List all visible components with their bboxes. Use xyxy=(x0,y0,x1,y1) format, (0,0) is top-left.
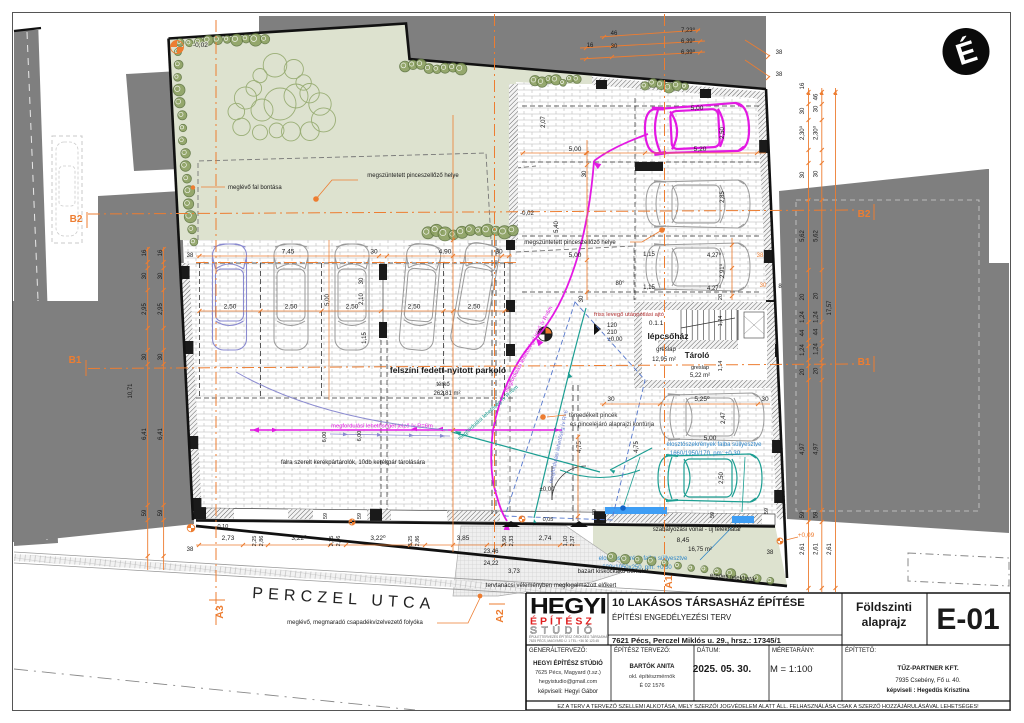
svg-text:30: 30 xyxy=(142,272,148,279)
svg-text:6,41: 6,41 xyxy=(158,428,164,440)
svg-text:2,86: 2,86 xyxy=(415,536,421,547)
svg-text:ÉPÍTTETŐ:: ÉPÍTTETŐ: xyxy=(845,647,876,654)
svg-text:30: 30 xyxy=(370,249,378,256)
svg-text:2,07: 2,07 xyxy=(541,116,547,128)
svg-text:Földszinti: Földszinti xyxy=(856,600,912,614)
svg-text:46: 46 xyxy=(611,31,618,37)
svg-text:10 LAKÁSOS TÁRSASHÁZ ÉPÍTÉSE: 10 LAKÁSOS TÁRSASHÁZ ÉPÍTÉSE xyxy=(612,596,805,609)
svg-text:B1: B1 xyxy=(69,355,82,366)
svg-text:5,62: 5,62 xyxy=(814,230,820,242)
svg-text:2,25: 2,25 xyxy=(252,536,258,547)
svg-text:20: 20 xyxy=(814,367,820,374)
svg-text:44: 44 xyxy=(814,328,820,335)
svg-text:+0,09: +0,09 xyxy=(798,532,815,539)
svg-text:1,24: 1,24 xyxy=(814,343,820,355)
svg-text:6,41: 6,41 xyxy=(142,428,148,440)
svg-text:46: 46 xyxy=(814,93,820,100)
svg-text:1,24: 1,24 xyxy=(718,316,724,327)
svg-text:16: 16 xyxy=(158,249,164,256)
svg-text:friss levegő utánpótlási ajtó: friss levegő utánpótlási ajtó xyxy=(594,312,664,318)
svg-text:4,27⁰: 4,27⁰ xyxy=(707,252,722,259)
svg-text:0.1.1.: 0.1.1. xyxy=(649,320,665,327)
svg-text:262,81 m²: 262,81 m² xyxy=(433,391,460,397)
svg-text:2,30⁰: 2,30⁰ xyxy=(813,125,820,140)
svg-text:tömedékelt pincék: tömedékelt pincék xyxy=(569,413,618,419)
svg-text:24,22: 24,22 xyxy=(483,561,499,567)
svg-text:30: 30 xyxy=(800,171,806,178)
svg-text:30: 30 xyxy=(800,107,806,114)
svg-text:A1: A1 xyxy=(663,575,675,589)
svg-text:20: 20 xyxy=(814,292,820,299)
svg-text:tervtanácsi véleményben megfog: tervtanácsi véleményben megfogalmazott e… xyxy=(486,583,617,589)
svg-text:ÉPÍTÉSI ENGEDÉLYEZÉSI TERV: ÉPÍTÉSI ENGEDÉLYEZÉSI TERV xyxy=(612,613,732,622)
svg-text:4,97: 4,97 xyxy=(814,443,820,455)
svg-text:felszíni fedett-nyitott parkol: felszíni fedett-nyitott parkoló xyxy=(390,365,506,375)
svg-text:7935 Csebény, Fő u. 40.: 7935 Csebény, Fő u. 40. xyxy=(895,678,961,684)
svg-text:1,15: 1,15 xyxy=(643,252,655,258)
svg-text:2,50: 2,50 xyxy=(719,472,725,484)
svg-text:1660/1950/170, pm: +0,30: 1660/1950/170, pm: +0,30 xyxy=(670,451,741,457)
svg-text:B2: B2 xyxy=(70,214,83,225)
svg-text:59: 59 xyxy=(710,512,716,518)
svg-text:2,47: 2,47 xyxy=(721,412,727,424)
svg-text:5,25⁰: 5,25⁰ xyxy=(694,395,710,403)
svg-text:38: 38 xyxy=(767,550,774,556)
svg-text:59: 59 xyxy=(357,513,363,519)
svg-text:hegyistudio@gmail.com: hegyistudio@gmail.com xyxy=(539,679,598,685)
svg-text:meglévő, megmaradó csapadékviz: meglévő, megmaradó csapadékvizelvezető f… xyxy=(287,620,423,626)
svg-text:1,24: 1,24 xyxy=(814,311,820,323)
svg-text:2,61: 2,61 xyxy=(827,543,833,555)
svg-text:EZ A TERV A TERVEZŐ SZELLEMI A: EZ A TERV A TERVEZŐ SZELLEMI ALKOTÁSA, M… xyxy=(557,703,979,710)
svg-text:greslap: greslap xyxy=(691,365,709,371)
svg-text:1,15: 1,15 xyxy=(643,285,655,291)
svg-text:greslap: greslap xyxy=(656,347,676,353)
svg-text:B2: B2 xyxy=(858,209,871,220)
svg-text:2,30⁰: 2,30⁰ xyxy=(799,125,806,140)
svg-text:4,27⁰: 4,27⁰ xyxy=(707,285,722,292)
svg-text:3,73: 3,73 xyxy=(508,569,520,575)
svg-text:2,33: 2,33 xyxy=(509,536,515,547)
svg-text:2,37: 2,37 xyxy=(570,536,576,547)
svg-text:HEGYI ÉPÍTÉSZ STÚDIÓ: HEGYI ÉPÍTÉSZ STÚDIÓ xyxy=(533,659,603,667)
svg-text:térkő: térkő xyxy=(436,382,450,388)
svg-text:-0,02: -0,02 xyxy=(520,211,534,217)
svg-text:2025. 05. 30.: 2025. 05. 30. xyxy=(693,664,752,675)
svg-text:2,25: 2,25 xyxy=(329,536,335,547)
svg-text:7,45: 7,45 xyxy=(282,249,295,256)
svg-text:59: 59 xyxy=(800,511,806,518)
svg-text:±0,00: ±0,00 xyxy=(540,487,556,493)
svg-text:megszüntetett pinceszellőző he: megszüntetett pinceszellőző helye xyxy=(524,240,616,246)
svg-text:lépcsőház: lépcsőház xyxy=(647,331,688,341)
svg-text:2,50: 2,50 xyxy=(346,304,359,311)
svg-text:5,22 m²: 5,22 m² xyxy=(690,373,710,379)
svg-text:4,90: 4,90 xyxy=(439,249,452,256)
svg-text:30: 30 xyxy=(582,170,588,177)
svg-text:E-01: E-01 xyxy=(936,603,999,636)
svg-text:44: 44 xyxy=(800,329,806,336)
svg-text:8,45: 8,45 xyxy=(677,537,690,544)
svg-text:2,50: 2,50 xyxy=(720,127,726,139)
svg-text:20: 20 xyxy=(718,294,724,300)
svg-text:16: 16 xyxy=(587,43,594,49)
svg-text:5,00: 5,00 xyxy=(691,105,704,112)
svg-text:2,85: 2,85 xyxy=(720,191,726,203)
svg-text:BARTÓK ANITA: BARTÓK ANITA xyxy=(630,662,676,670)
svg-text:ÉPÍTÉSZ TERVEZŐ:: ÉPÍTÉSZ TERVEZŐ: xyxy=(614,647,671,654)
svg-text:2,61: 2,61 xyxy=(814,543,820,555)
svg-text:1,14: 1,14 xyxy=(718,361,724,372)
svg-text:2,86: 2,86 xyxy=(259,536,265,547)
svg-text:38: 38 xyxy=(187,547,194,553)
svg-text:1,10: 1,10 xyxy=(563,536,569,547)
svg-text:6,39⁰: 6,39⁰ xyxy=(681,49,696,56)
svg-text:7625 PÉCS, MAGYARD Ú. 1 TEL:: 7625 PÉCS, MAGYARD Ú. 1 TEL: +36 30 123 … xyxy=(529,638,599,643)
svg-text:5,00: 5,00 xyxy=(569,252,582,259)
svg-text:A3: A3 xyxy=(214,605,226,619)
svg-text:-0,02: -0,02 xyxy=(193,42,208,49)
svg-text:17,57: 17,57 xyxy=(827,300,833,316)
svg-text:3,22⁰: 3,22⁰ xyxy=(370,534,386,542)
svg-text:30: 30 xyxy=(611,44,618,50)
svg-text:0,05: 0,05 xyxy=(543,517,554,523)
svg-text:5,40: 5,40 xyxy=(554,221,560,233)
svg-text:16: 16 xyxy=(142,249,148,256)
svg-text:16,75 m²: 16,75 m² xyxy=(688,547,712,553)
svg-text:5,00: 5,00 xyxy=(569,146,582,153)
svg-text:alaprajz: alaprajz xyxy=(862,615,907,629)
svg-text:5,00: 5,00 xyxy=(704,435,717,442)
svg-text:elosztószekrények falba süllye: elosztószekrények falba süllyesztve xyxy=(666,442,762,448)
svg-text:59: 59 xyxy=(814,511,820,518)
svg-text:30: 30 xyxy=(579,295,585,302)
svg-text:30: 30 xyxy=(359,277,365,284)
svg-text:2,61: 2,61 xyxy=(800,543,806,555)
svg-text:38: 38 xyxy=(776,72,783,78)
svg-text:képviseli : Hegedűs Krisztina: képviseli : Hegedűs Krisztina xyxy=(886,688,970,694)
svg-text:23,46: 23,46 xyxy=(483,549,499,555)
svg-text:és pincelejáró alaprajzi kontú: és pincelejáró alaprajzi kontúrja xyxy=(570,422,655,428)
svg-text:2,50: 2,50 xyxy=(224,304,237,311)
svg-text:képviseli: Hegyi Gábor: képviseli: Hegyi Gábor xyxy=(538,689,598,695)
svg-text:DÁTUM:: DÁTUM: xyxy=(697,647,720,654)
svg-text:30: 30 xyxy=(814,170,820,177)
svg-text:2,86: 2,86 xyxy=(336,536,342,547)
svg-text:59: 59 xyxy=(142,509,148,516)
svg-text:3,50: 3,50 xyxy=(502,536,508,547)
svg-text:30: 30 xyxy=(142,353,148,360)
svg-text:30: 30 xyxy=(495,249,503,256)
svg-text:6,00: 6,00 xyxy=(322,432,328,443)
svg-text:±0,00: ±0,00 xyxy=(608,337,624,343)
svg-text:2,73: 2,73 xyxy=(222,535,235,542)
svg-text:2,91⁰: 2,91⁰ xyxy=(719,263,726,278)
svg-text:megszüntetett pinceszellőző he: megszüntetett pinceszellőző helye xyxy=(367,173,459,179)
svg-text:TŰZ-PARTNER KFT.: TŰZ-PARTNER KFT. xyxy=(897,663,958,672)
svg-text:1,24: 1,24 xyxy=(800,311,806,323)
svg-text:2,95: 2,95 xyxy=(142,303,148,315)
svg-text:2,95: 2,95 xyxy=(158,303,164,315)
svg-text:okl. építészmérnök: okl. építészmérnök xyxy=(629,674,675,680)
svg-text:7,23⁰: 7,23⁰ xyxy=(681,27,696,34)
svg-text:B1: B1 xyxy=(858,357,871,368)
svg-text:2,50: 2,50 xyxy=(285,304,298,311)
svg-text:5,62: 5,62 xyxy=(800,230,806,242)
svg-text:GENERÁLTERVEZŐ:: GENERÁLTERVEZŐ: xyxy=(529,647,587,654)
svg-text:38: 38 xyxy=(776,50,783,56)
svg-text:4,75: 4,75 xyxy=(634,441,640,453)
svg-text:meglévő fal bontása: meglévő fal bontása xyxy=(228,185,282,191)
svg-text:38: 38 xyxy=(187,253,194,259)
svg-text:59: 59 xyxy=(323,513,329,519)
svg-text:É 02 1576: É 02 1576 xyxy=(639,682,664,689)
svg-text:30: 30 xyxy=(158,353,164,360)
svg-text:2,50: 2,50 xyxy=(468,304,481,311)
svg-text:2,10: 2,10 xyxy=(359,293,365,305)
svg-text:2,74: 2,74 xyxy=(539,535,552,542)
svg-text:2,50: 2,50 xyxy=(408,304,421,311)
svg-text:4,97: 4,97 xyxy=(800,443,806,455)
svg-text:59: 59 xyxy=(592,509,598,515)
svg-text:bazart kiskockakő burkolat: bazart kiskockakő burkolat xyxy=(578,569,649,575)
svg-text:6,00: 6,00 xyxy=(357,431,363,442)
svg-text:5,00: 5,00 xyxy=(325,294,331,306)
svg-text:3,85: 3,85 xyxy=(457,535,470,542)
svg-text:1,15: 1,15 xyxy=(362,332,368,344)
svg-text:megfordulási lehetőséget jelző: megfordulási lehetőséget jelző ív R=6m xyxy=(331,424,433,430)
svg-text:20: 20 xyxy=(800,368,806,375)
svg-text:38: 38 xyxy=(757,253,764,259)
svg-text:3,25: 3,25 xyxy=(408,536,414,547)
svg-text:A2: A2 xyxy=(494,609,506,623)
svg-text:3,22⁰: 3,22⁰ xyxy=(291,534,307,542)
svg-text:59: 59 xyxy=(764,508,770,514)
svg-text:5,20: 5,20 xyxy=(694,146,707,153)
svg-text:falra szerelt kerékpártárolók,: falra szerelt kerékpártárolók, 10db keré… xyxy=(281,460,426,466)
svg-text:MÉRETARÁNY:: MÉRETARÁNY: xyxy=(772,647,815,654)
svg-text:30: 30 xyxy=(761,396,769,403)
svg-text:Tároló: Tároló xyxy=(685,351,710,360)
svg-text:30: 30 xyxy=(158,272,164,279)
svg-text:szabályozási vonal - új telekh: szabályozási vonal - új telekhatár xyxy=(653,527,741,533)
svg-text:M = 1:100: M = 1:100 xyxy=(770,664,813,675)
svg-text:30: 30 xyxy=(814,105,820,112)
svg-text:20: 20 xyxy=(800,293,806,300)
svg-text:30: 30 xyxy=(760,283,767,289)
svg-text:210: 210 xyxy=(607,330,618,336)
svg-text:1,24: 1,24 xyxy=(800,344,806,356)
svg-text:10,71: 10,71 xyxy=(128,383,134,399)
svg-text:7621 Pécs, Perczel Miklós u. 2: 7621 Pécs, Perczel Miklós u. 29., hrsz.:… xyxy=(612,636,782,645)
svg-text:59: 59 xyxy=(158,509,164,516)
svg-text:7625 Pécs, Magyard (t.sz.): 7625 Pécs, Magyard (t.sz.) xyxy=(535,670,601,676)
svg-text:80°: 80° xyxy=(615,281,625,287)
svg-text:6,39⁰: 6,39⁰ xyxy=(681,38,696,45)
svg-text:30: 30 xyxy=(607,396,615,403)
svg-text:120: 120 xyxy=(607,323,618,329)
svg-text:16: 16 xyxy=(800,82,806,89)
